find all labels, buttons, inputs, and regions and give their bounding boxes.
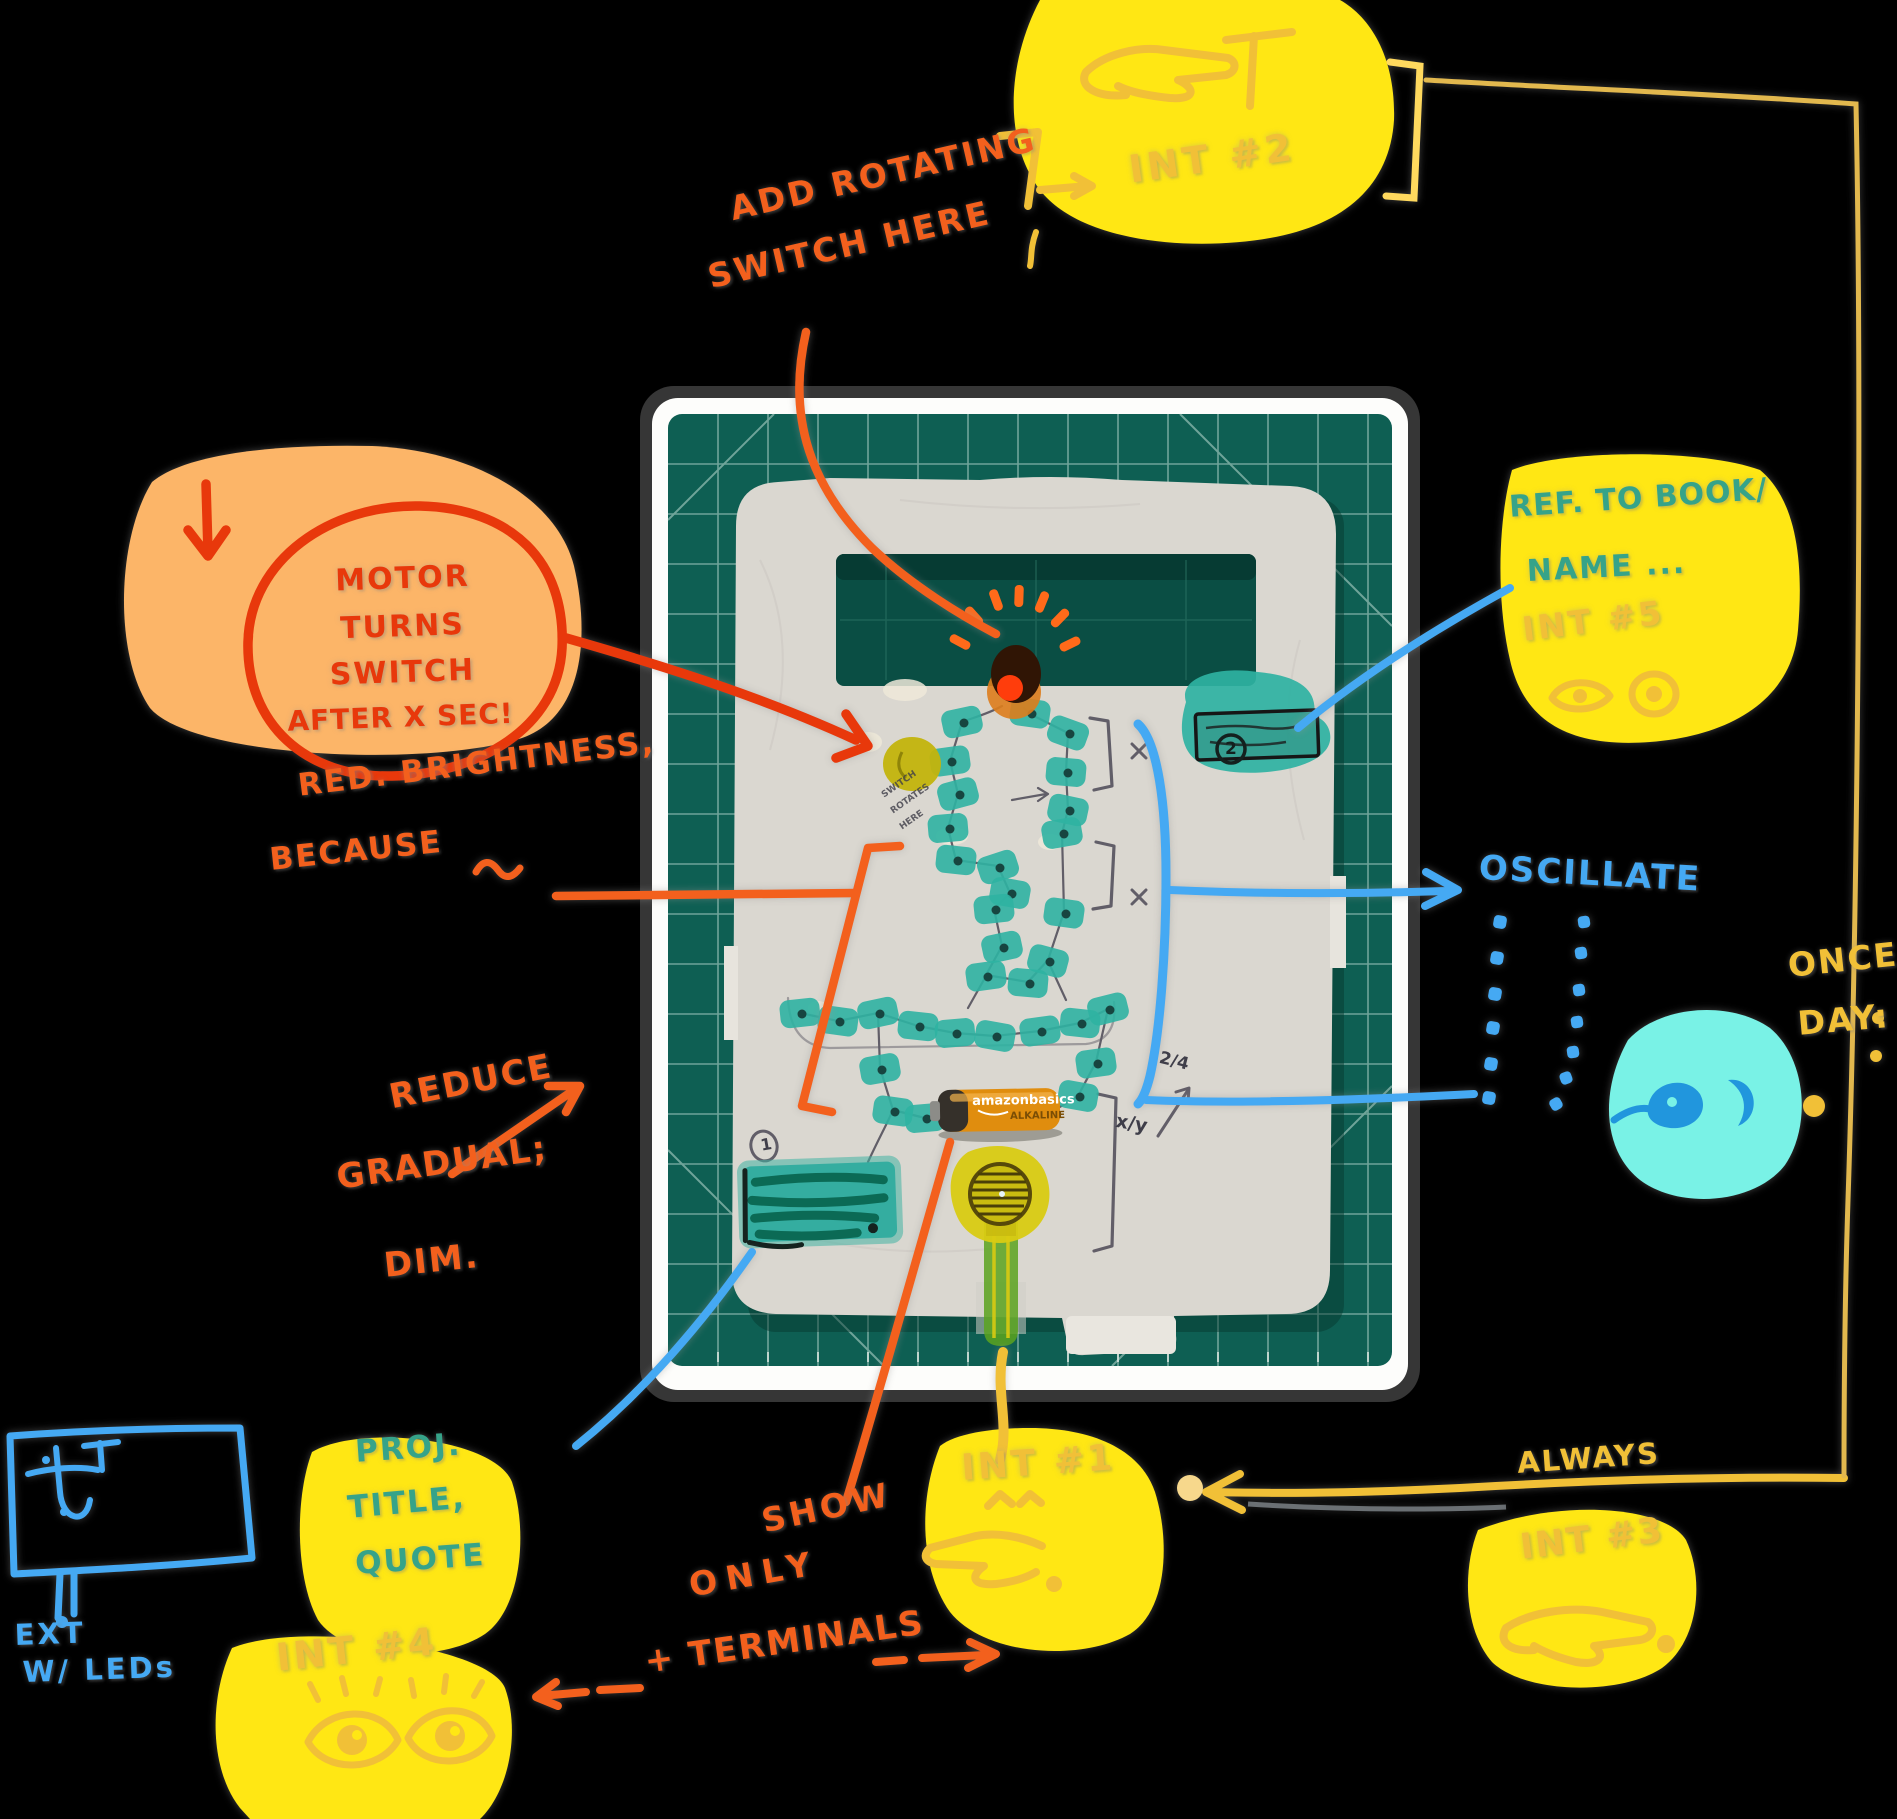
cyan-eyes-blob [1609, 1010, 1802, 1199]
led-sticker-pin [1060, 830, 1069, 839]
once-day-line2: DAY: [1796, 996, 1891, 1043]
led-sticker-pin [996, 864, 1005, 873]
led-sticker-pin [956, 791, 965, 800]
led-sticker-pin [1066, 730, 1075, 739]
screen-inner-doodle [28, 1442, 118, 1517]
led-sticker-pin [1000, 944, 1009, 953]
sensor-to-int1-line [1000, 1352, 1004, 1460]
led-sticker-pin [891, 1108, 900, 1117]
led-sticker-pin [1066, 807, 1075, 816]
int1-hand-dot [1046, 1576, 1062, 1592]
led-sticker-pin [1038, 1028, 1047, 1037]
screen-stand [58, 1572, 74, 1618]
led-sticker-pin [1062, 910, 1071, 919]
painted-switch-block [737, 1155, 904, 1249]
led-sticker-pin [876, 1010, 885, 1019]
battery-brand-label: amazonbasics [972, 1092, 1075, 1109]
annotated-prototype-sketch: ADD ROTATING SWITCH HERE INT #2 MOTOR TU… [0, 0, 1897, 1819]
ext-leds-line2: W/ LEDs [22, 1650, 176, 1689]
led-sticker-pin [878, 1066, 887, 1075]
led-sticker-pin [953, 1030, 962, 1039]
led-sticker-pin [946, 825, 955, 834]
led-sticker-pin [984, 973, 993, 982]
led-sticker-pin [1026, 980, 1035, 989]
led-sticker-pin [798, 1010, 807, 1019]
int3-hand-dot [1657, 1635, 1675, 1653]
led-sticker-pin [1106, 1006, 1115, 1015]
led-sticker-pin [1046, 958, 1055, 967]
led-sticker-pin [960, 719, 969, 728]
pale-dot [1177, 1475, 1203, 1501]
led-sticker-pin [1076, 1093, 1085, 1102]
int2-blob [1014, 0, 1394, 244]
led-sticker-pin [916, 1023, 925, 1032]
blob-drip [1030, 232, 1036, 266]
led-sticker-pin [1064, 769, 1073, 778]
terminals-left-arrow [536, 1682, 640, 1706]
arrow-shadow-line [1248, 1504, 1506, 1509]
brightness-link-line [556, 893, 856, 896]
board-tab-left [724, 946, 738, 1040]
screen-sketch-icon [10, 1428, 252, 1574]
led-sticker-pin [1094, 1060, 1103, 1069]
board-tab-bottom [1066, 1316, 1176, 1354]
battery-type-label: ALKALINE [1010, 1110, 1065, 1122]
led-sticker-pin [992, 906, 1001, 915]
led-sticker-pin [836, 1018, 845, 1027]
led-sticker-pin [993, 1033, 1002, 1042]
right-edge-connector-line [1426, 80, 1859, 1476]
circled-two-label: 2 [1225, 739, 1237, 759]
sine-squiggle-icon [476, 862, 520, 876]
led-sticker-pin [948, 758, 957, 767]
project-note-line1: PROJ. [354, 1427, 463, 1470]
led-sticker-pin [954, 857, 963, 866]
led-sticker-pin [1078, 1020, 1087, 1029]
ext-leds-line1: EXT [14, 1616, 86, 1652]
